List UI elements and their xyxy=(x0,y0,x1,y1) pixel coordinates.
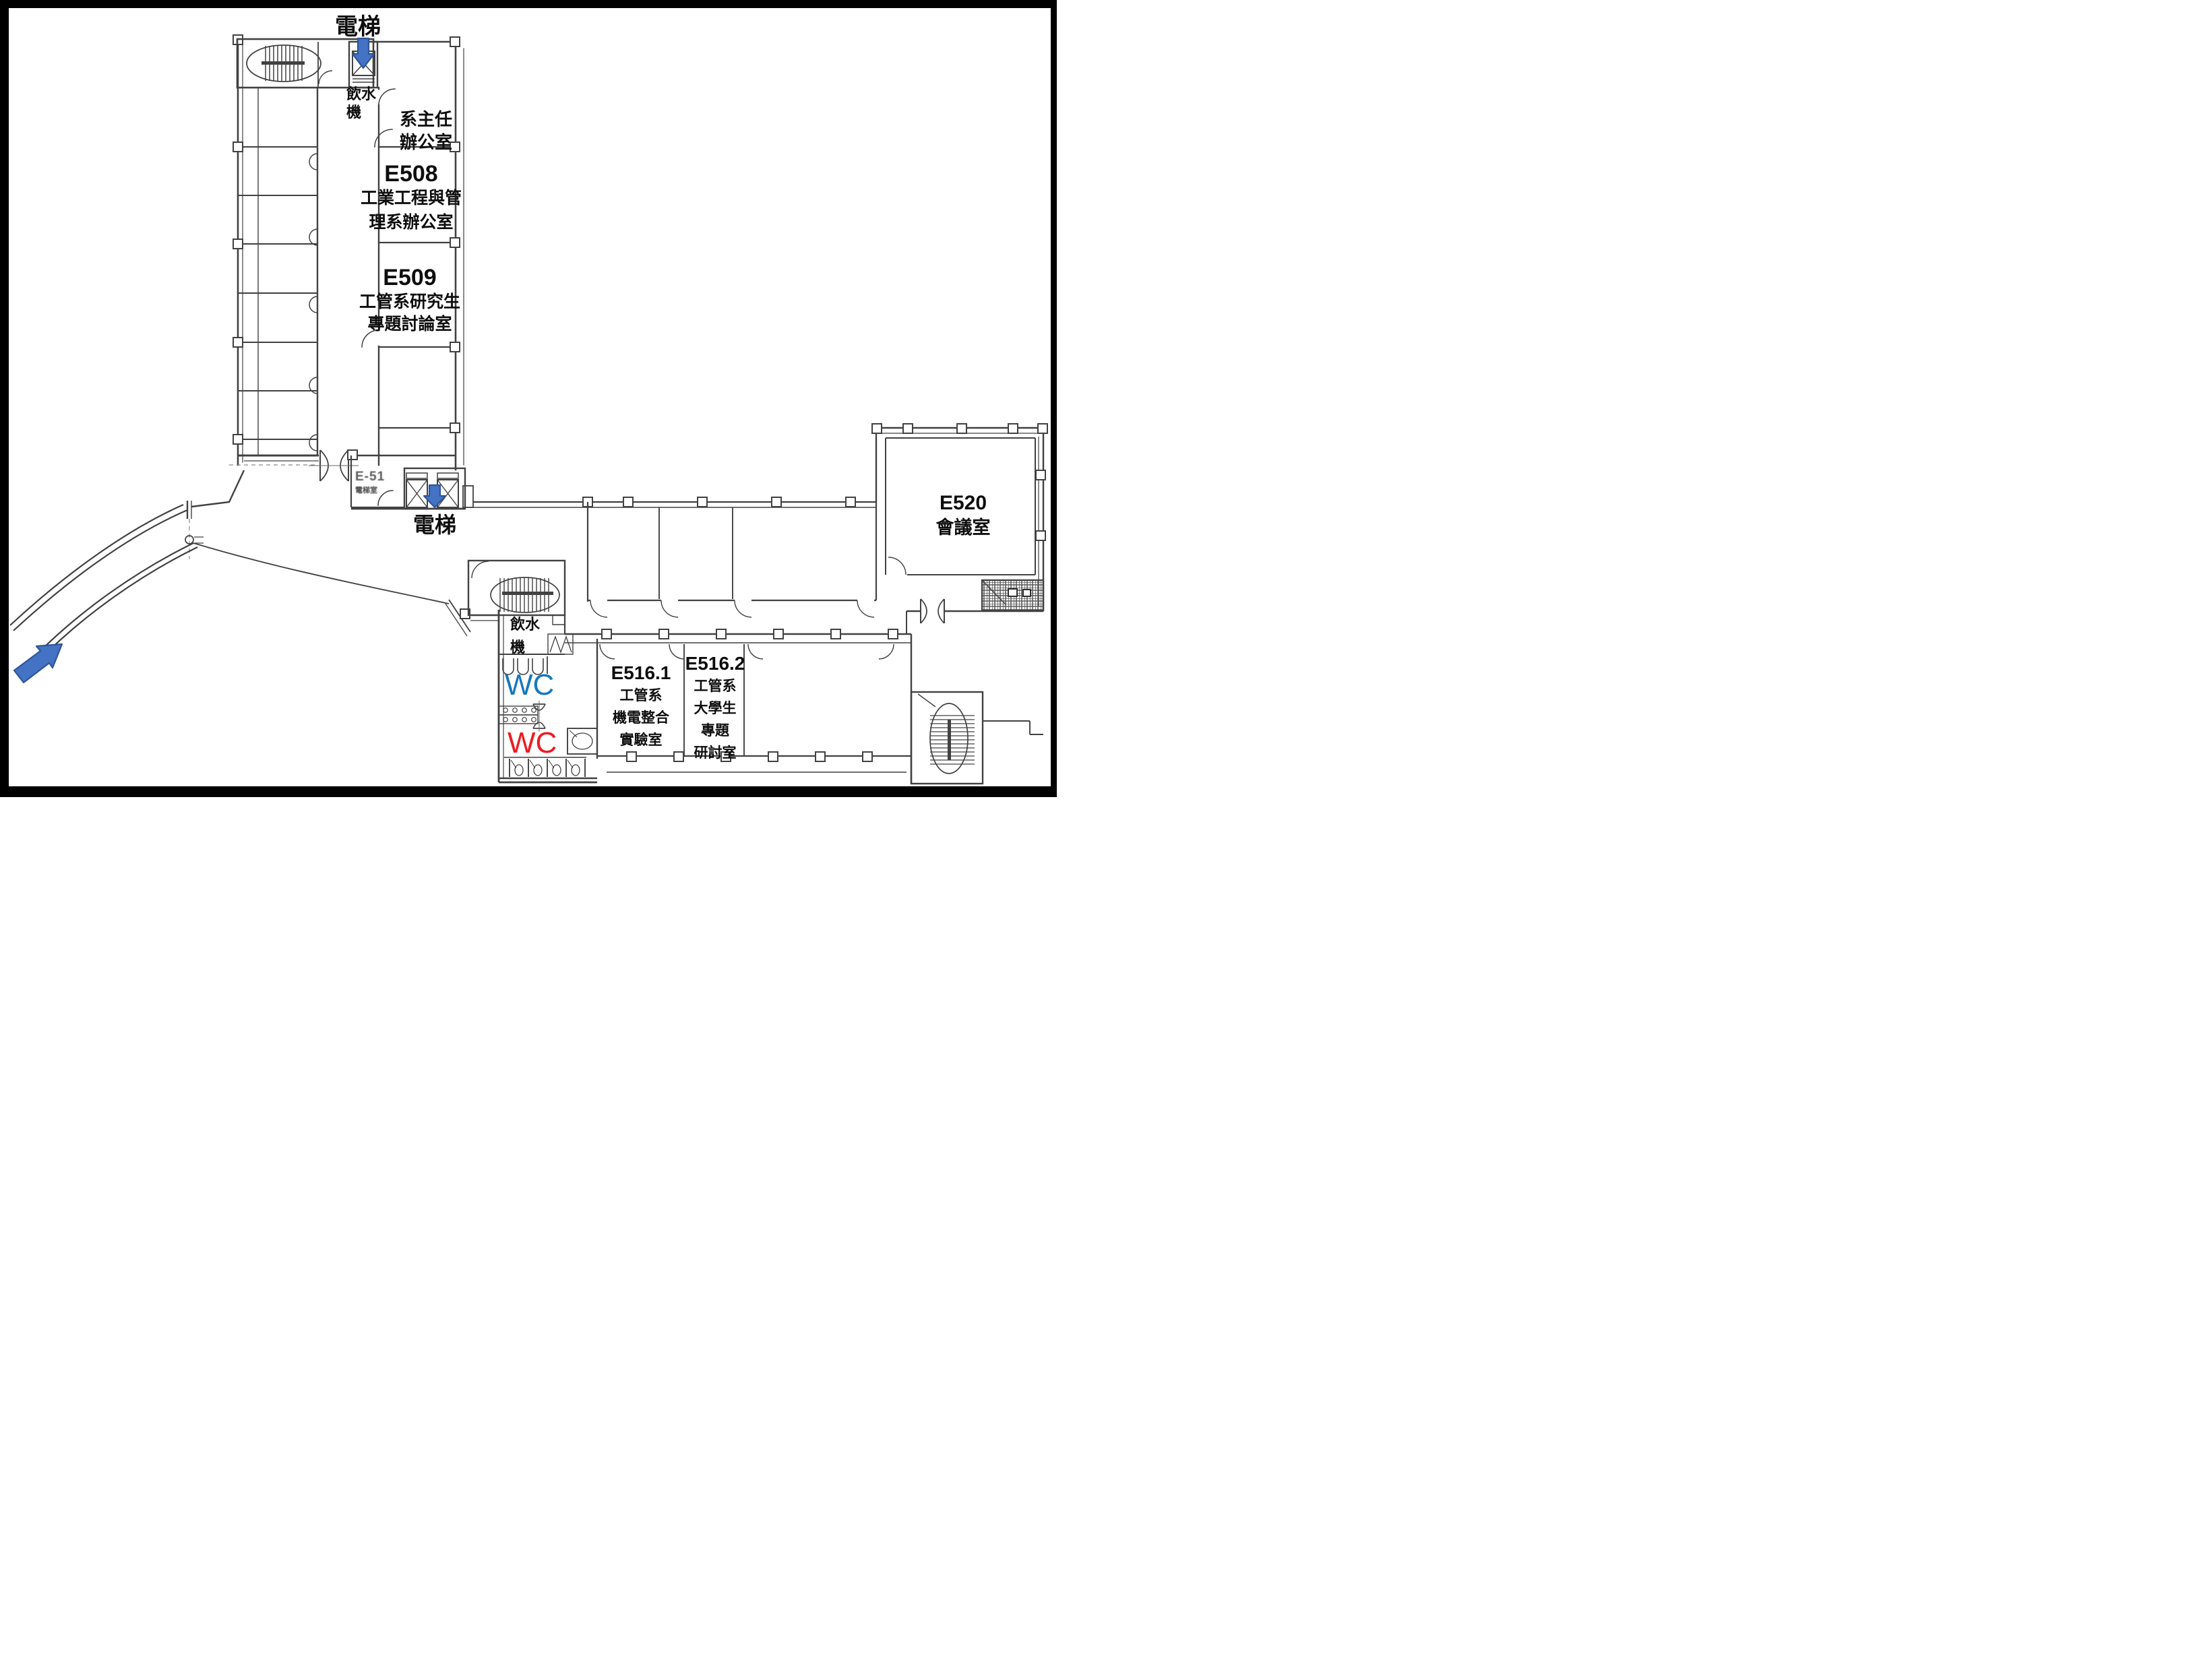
label-dept-head-office: 系主任 辦公室 xyxy=(377,108,474,154)
entrance-arrow-icon xyxy=(14,644,62,683)
curved-corridor xyxy=(10,470,499,663)
floor-plan-page: 電梯 飲水 機 系主任 辦公室 E508 工業工程與管 理系辦公室 E509 工… xyxy=(0,0,1057,797)
hatch-box xyxy=(982,580,1043,610)
right-wing-walls xyxy=(473,497,876,617)
label-wc-blue: WC xyxy=(505,668,554,702)
label-water-fountain-bottom: 飲水 機 xyxy=(510,613,540,659)
label-room-e516-2: E516.2 工管系 大學生 專題 研討室 xyxy=(667,652,763,764)
label-wc-red: WC xyxy=(508,726,557,760)
label-room-e509: E509 工管系研究生 專題討論室 xyxy=(353,264,466,336)
label-elevator-top: 電梯 xyxy=(317,8,398,41)
stairs-right-icon xyxy=(911,692,983,784)
down-arrow-top-icon xyxy=(352,38,374,68)
label-elevator-mid: 電梯 xyxy=(394,508,475,539)
label-water-fountain-top: 飲水 機 xyxy=(346,85,376,121)
label-room-e520: E520 會議室 xyxy=(913,491,1014,540)
label-room-e508: E508 工業工程與管 理系辦公室 xyxy=(356,162,466,234)
label-room-e51x: E-51 電梯室 xyxy=(355,470,385,497)
